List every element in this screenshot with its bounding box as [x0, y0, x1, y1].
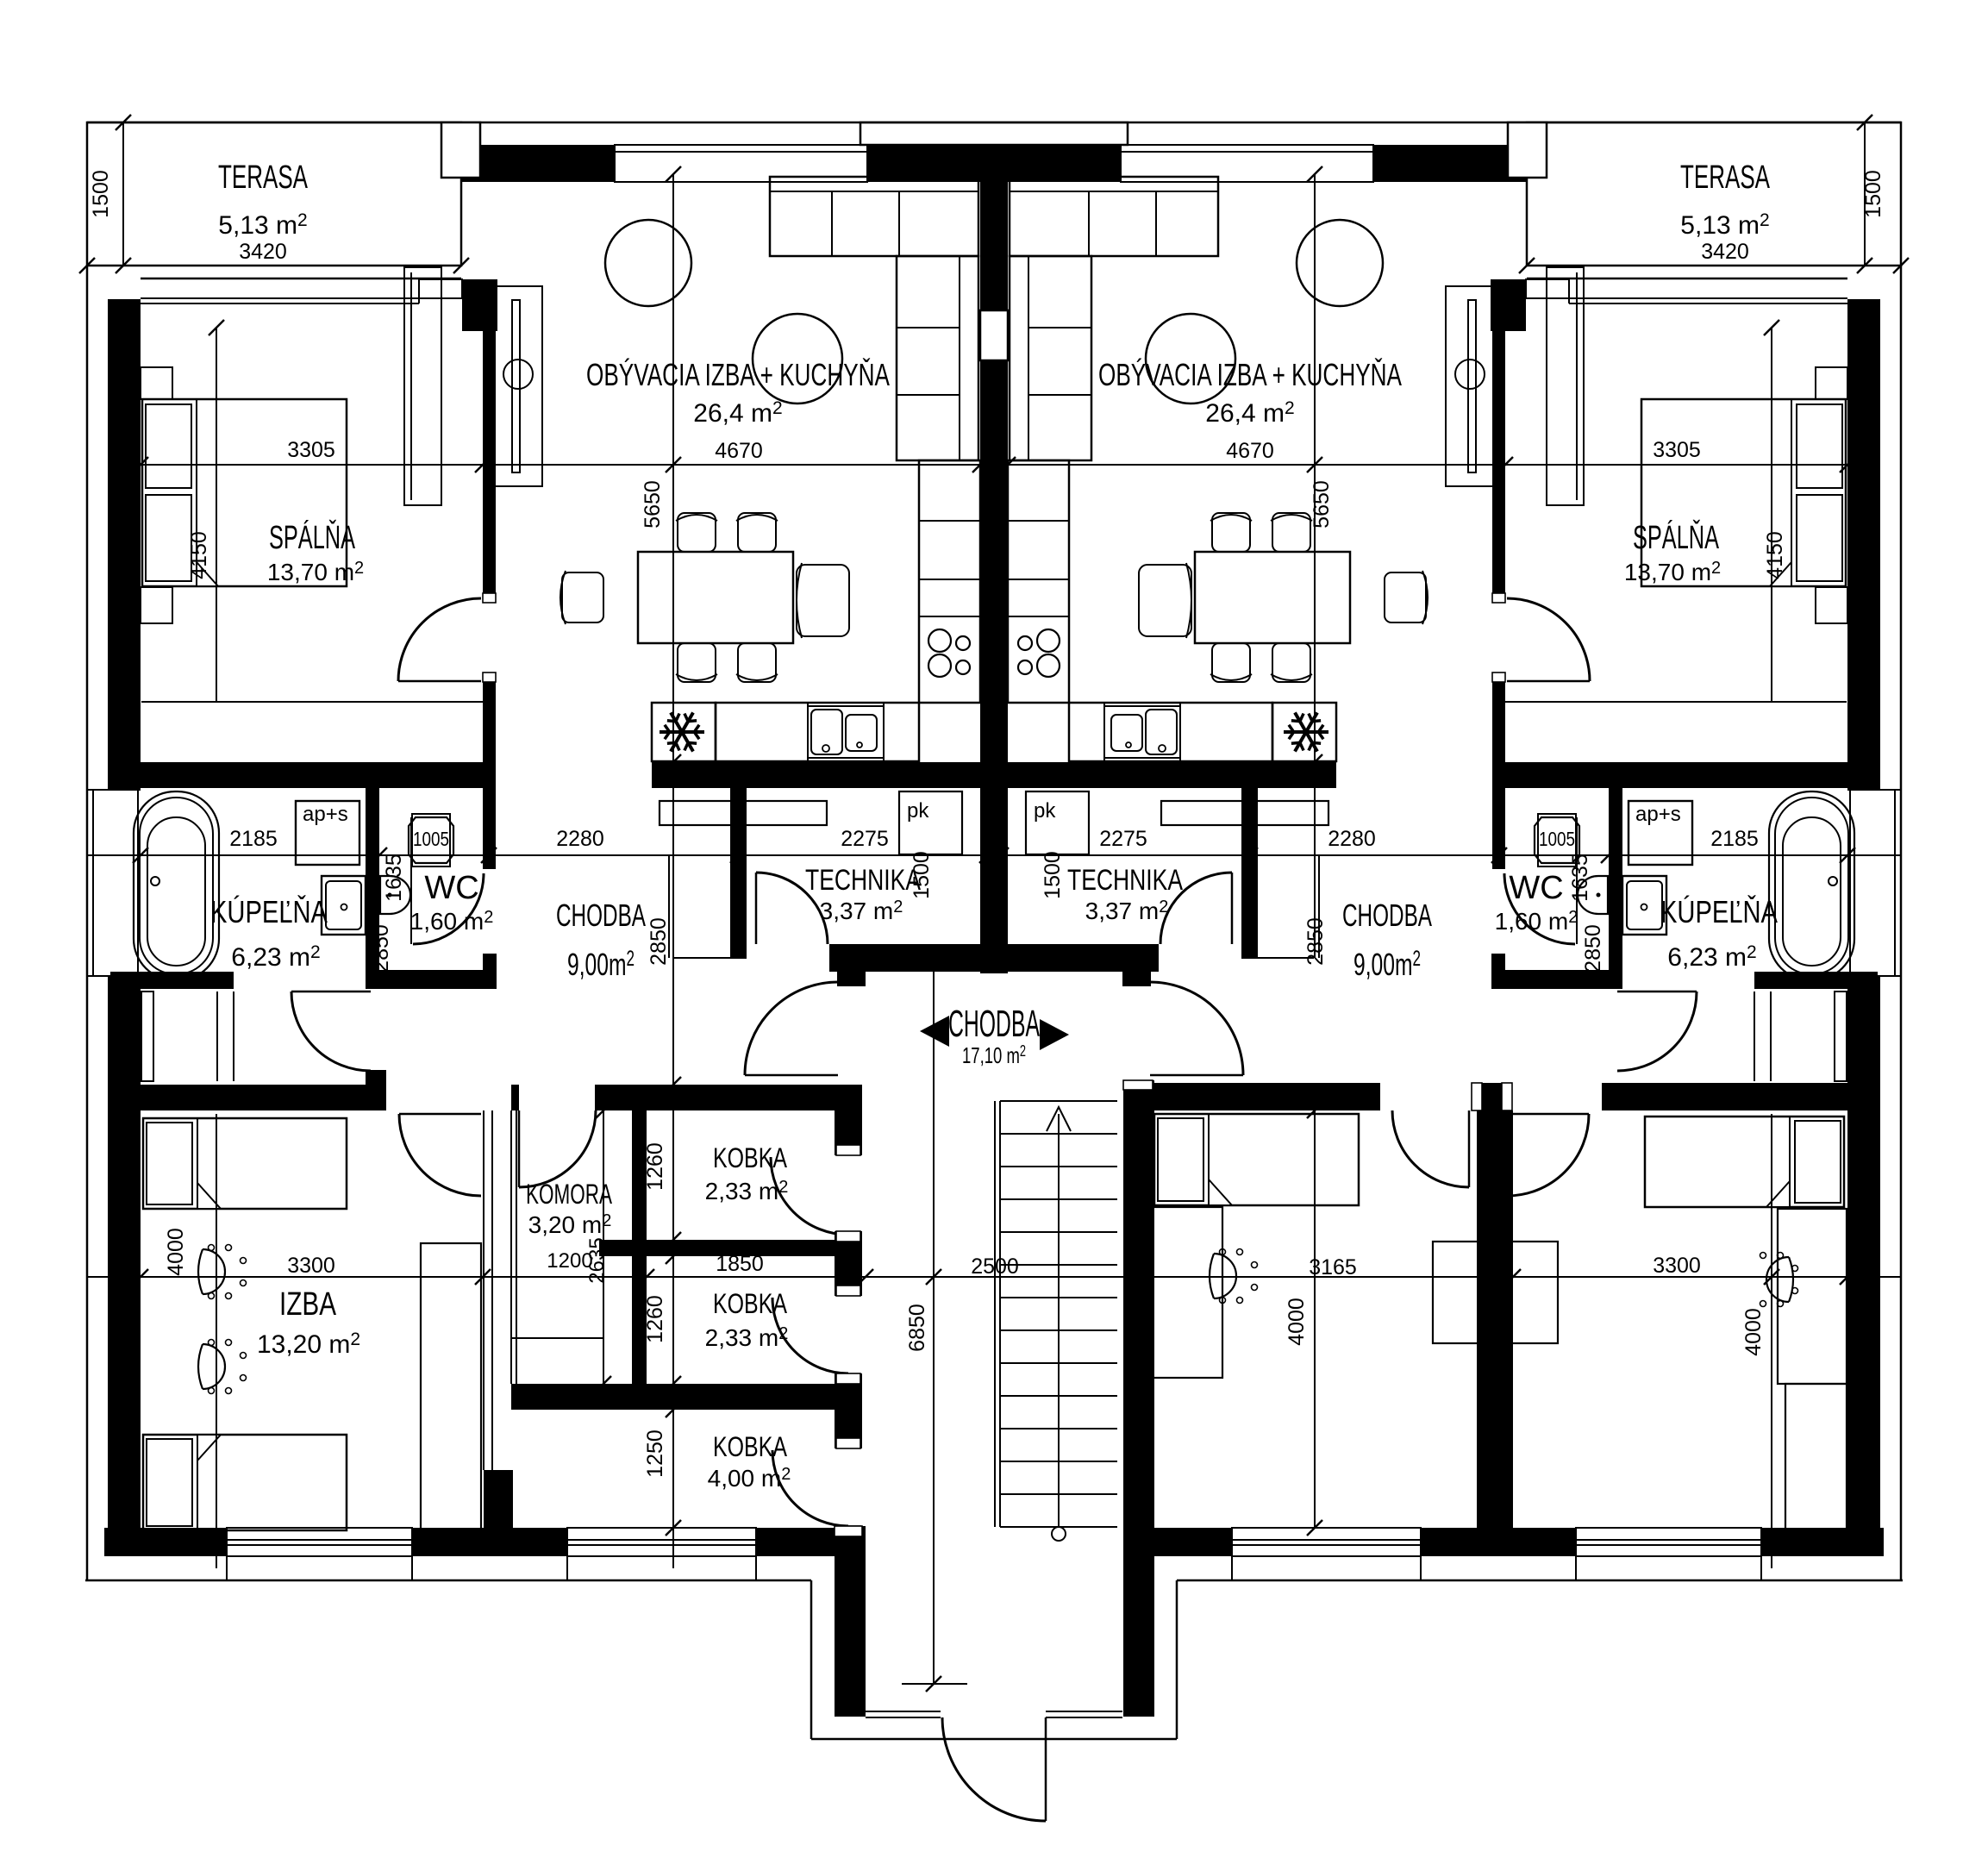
svg-text:KOBKA: KOBKA: [713, 1288, 788, 1319]
svg-text:1635: 1635: [382, 854, 406, 902]
svg-text:2185: 2185: [1710, 827, 1759, 851]
svg-text:1250: 1250: [643, 1429, 667, 1478]
svg-text:1260: 1260: [643, 1295, 667, 1343]
svg-text:4000: 4000: [1285, 1298, 1309, 1346]
svg-text:CHODBA: CHODBA: [556, 898, 646, 933]
svg-text:5,13 m2: 5,13 m2: [218, 210, 307, 240]
svg-text:2280: 2280: [556, 827, 604, 851]
svg-text:6,23 m2: 6,23 m2: [1667, 942, 1756, 972]
svg-text:2635: 2635: [585, 1237, 609, 1283]
svg-text:3300: 3300: [287, 1254, 335, 1278]
svg-text:WC: WC: [1509, 870, 1563, 906]
svg-text:1500: 1500: [89, 170, 113, 218]
svg-text:4150: 4150: [1763, 531, 1787, 579]
svg-text:1,60 m2: 1,60 m2: [1495, 908, 1579, 935]
svg-text:2,33 m2: 2,33 m2: [705, 1324, 789, 1351]
svg-text:ap+s: ap+s: [303, 803, 348, 826]
svg-text:OBÝVACIA IZBA + KUCHYŇA: OBÝVACIA IZBA + KUCHYŇA: [586, 357, 890, 392]
svg-text:1635: 1635: [1568, 854, 1592, 902]
svg-text:TERASA: TERASA: [1680, 160, 1770, 196]
svg-text:TECHNIKA: TECHNIKA: [1067, 864, 1183, 897]
svg-text:13,70 m2: 13,70 m2: [1624, 559, 1721, 585]
svg-text:2,33 m2: 2,33 m2: [705, 1178, 789, 1204]
svg-text:4670: 4670: [715, 439, 763, 463]
svg-text:4,00 m2: 4,00 m2: [708, 1465, 791, 1492]
svg-text:CHODBA: CHODBA: [948, 1003, 1040, 1045]
svg-text:6850: 6850: [905, 1304, 929, 1352]
svg-text:WC: WC: [424, 870, 478, 906]
svg-text:13,70 m2: 13,70 m2: [267, 559, 364, 585]
svg-text:1,60 m2: 1,60 m2: [410, 908, 494, 935]
svg-text:5,13 m2: 5,13 m2: [1680, 210, 1769, 240]
svg-text:9,00m2: 9,00m2: [1353, 947, 1421, 982]
svg-text:pk: pk: [907, 799, 929, 823]
svg-text:1850: 1850: [716, 1252, 764, 1276]
svg-text:ap+s: ap+s: [1635, 803, 1681, 826]
svg-text:2850: 2850: [1303, 917, 1328, 966]
svg-text:3,20 m2: 3,20 m2: [528, 1211, 612, 1238]
svg-text:1500: 1500: [910, 851, 934, 899]
svg-text:3305: 3305: [287, 438, 335, 462]
svg-text:2850: 2850: [1581, 924, 1605, 973]
svg-text:3,37 m2: 3,37 m2: [820, 898, 903, 924]
svg-text:1260: 1260: [643, 1142, 667, 1191]
svg-text:2850: 2850: [369, 924, 393, 973]
svg-text:4670: 4670: [1226, 439, 1274, 463]
svg-text:1500: 1500: [1041, 851, 1065, 899]
svg-text:SPÁLŇA: SPÁLŇA: [269, 519, 355, 556]
svg-text:2500: 2500: [971, 1254, 1019, 1279]
svg-text:KÚPEĽŇA: KÚPEĽŇA: [210, 894, 328, 929]
svg-text:2850: 2850: [647, 917, 671, 966]
svg-text:1005: 1005: [413, 828, 449, 850]
svg-text:1500: 1500: [1861, 170, 1885, 218]
svg-text:5650: 5650: [1310, 480, 1334, 529]
svg-text:TECHNIKA: TECHNIKA: [805, 864, 921, 897]
svg-text:3305: 3305: [1653, 438, 1701, 462]
svg-text:3165: 3165: [1309, 1255, 1357, 1279]
svg-text:1005: 1005: [1539, 828, 1575, 850]
svg-text:26,4 m2: 26,4 m2: [693, 398, 782, 428]
svg-text:KÚPEĽŇA: KÚPEĽŇA: [1660, 894, 1778, 929]
svg-text:SPÁLŇA: SPÁLŇA: [1633, 519, 1719, 556]
svg-text:TERASA: TERASA: [218, 160, 308, 196]
svg-text:2185: 2185: [229, 827, 278, 851]
svg-text:13,20 m2: 13,20 m2: [257, 1329, 360, 1359]
svg-text:3,37 m2: 3,37 m2: [1085, 898, 1169, 924]
svg-text:KOBKA: KOBKA: [713, 1431, 788, 1462]
svg-text:4000: 4000: [164, 1228, 188, 1276]
svg-text:5650: 5650: [641, 480, 665, 529]
svg-text:9,00m2: 9,00m2: [567, 947, 635, 982]
svg-text:KOBKA: KOBKA: [713, 1142, 788, 1173]
svg-text:3420: 3420: [1701, 240, 1749, 264]
svg-text:CHODBA: CHODBA: [1342, 898, 1432, 933]
svg-text:4150: 4150: [187, 531, 211, 579]
svg-text:2280: 2280: [1328, 827, 1376, 851]
svg-text:IZBA: IZBA: [279, 1286, 337, 1323]
svg-text:3420: 3420: [239, 240, 287, 264]
svg-text:26,4 m2: 26,4 m2: [1205, 398, 1294, 428]
svg-text:6,23 m2: 6,23 m2: [231, 942, 320, 972]
svg-text:pk: pk: [1034, 799, 1056, 823]
svg-text:OBÝVACIA IZBA + KUCHYŇA: OBÝVACIA IZBA + KUCHYŇA: [1098, 357, 1402, 392]
svg-text:2275: 2275: [1099, 827, 1147, 851]
svg-text:17,10 m2: 17,10 m2: [962, 1042, 1026, 1068]
svg-text:2275: 2275: [841, 827, 889, 851]
svg-text:3300: 3300: [1653, 1254, 1701, 1278]
svg-text:4000: 4000: [1741, 1308, 1766, 1356]
svg-text:KOMORA: KOMORA: [526, 1179, 612, 1210]
